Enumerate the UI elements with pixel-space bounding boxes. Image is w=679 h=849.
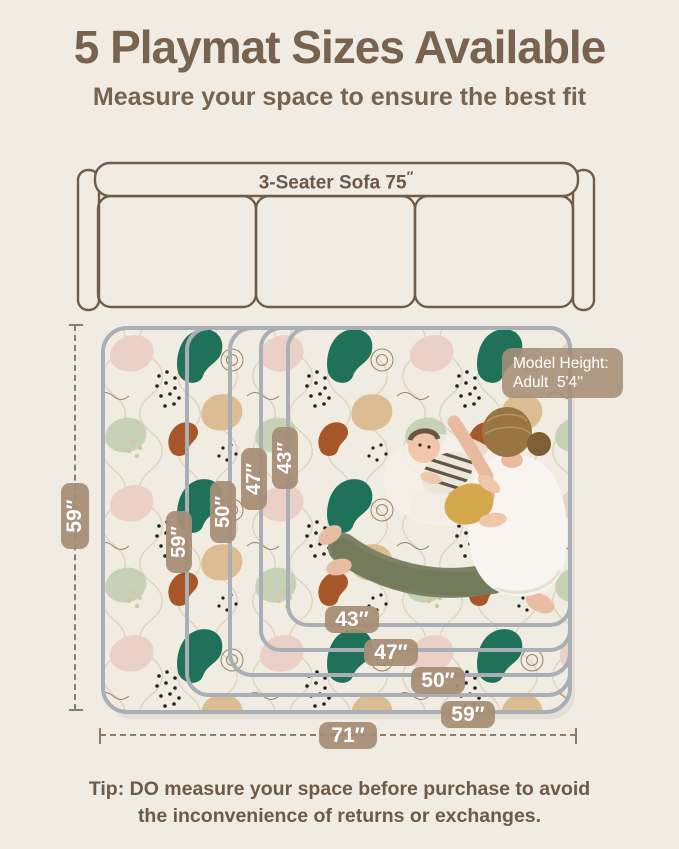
mat-width-label-50: 50″ (411, 667, 465, 694)
sofa-left-armrest (78, 170, 99, 310)
model-height-tag: Model Height: Adult 5'4'' (502, 348, 623, 398)
mat-height-label-43: 43″ (272, 427, 298, 489)
sofa-size-label: 3-Seater Sofa 75″ (166, 168, 506, 194)
model-height-line1: Model Height: (513, 354, 623, 373)
mat-width-label-43: 43″ (325, 606, 379, 633)
sofa-seat-1 (98, 196, 256, 307)
mat-height-label-50: 50″ (210, 481, 236, 543)
tip-line1: Tip: DO measure your space before purcha… (0, 776, 679, 803)
tip-text: Tip: DO measure your space before purcha… (0, 776, 679, 830)
mat-width-label-59: 59″ (441, 701, 495, 728)
sofa-seat-3 (415, 196, 573, 307)
mat-height-label-47: 47″ (241, 448, 267, 510)
page-title: 5 Playmat Sizes Available (0, 20, 679, 74)
sofa-right-armrest (573, 170, 594, 310)
outer-width-label: 71″ (319, 722, 377, 749)
outer-height-label: 59″ (61, 483, 89, 549)
page-subtitle: Measure your space to ensure the best fi… (0, 83, 679, 112)
inch-mark: ″ (407, 168, 414, 184)
playmat-sizes-infographic: 5 Playmat Sizes Available Measure your s… (0, 0, 679, 849)
tip-line2: the inconvenience of returns or exchange… (0, 803, 679, 830)
sofa-seat-2 (256, 196, 415, 307)
mat-width-label-47: 47″ (364, 639, 418, 666)
mat-height-label-59: 59″ (166, 511, 192, 573)
model-height-line2: Adult 5'4'' (513, 373, 623, 392)
